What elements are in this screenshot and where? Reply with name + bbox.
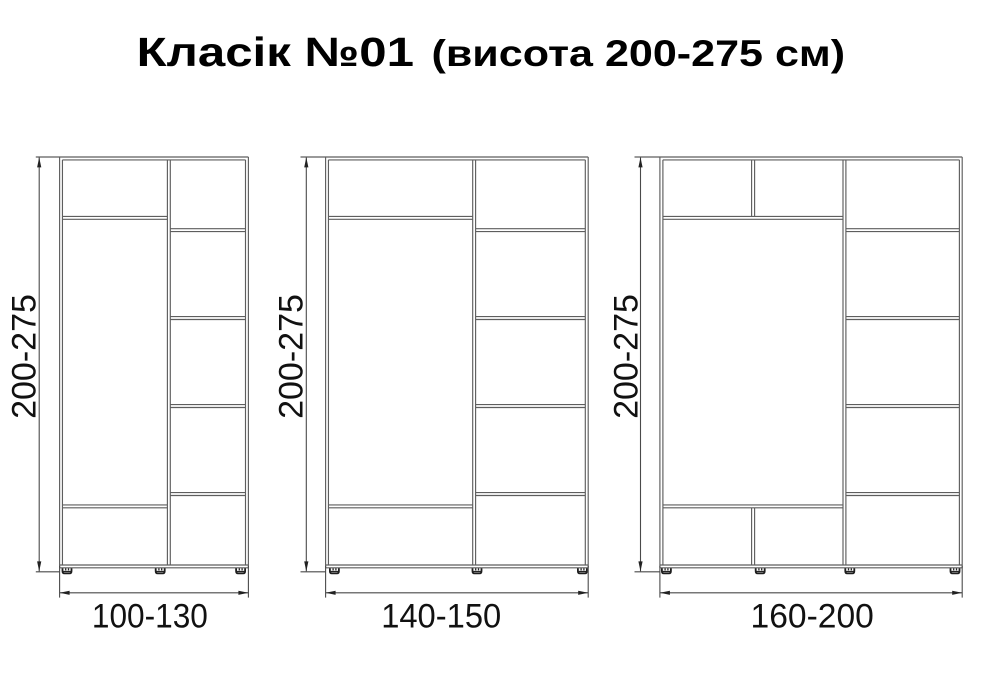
svg-text:200-275: 200-275 xyxy=(273,294,311,419)
svg-text:200-275: 200-275 xyxy=(5,294,43,419)
svg-text:(висота 200-275 см): (висота 200-275 см) xyxy=(432,32,846,74)
svg-text:100-130: 100-130 xyxy=(92,597,208,635)
svg-text:200-275: 200-275 xyxy=(607,294,645,419)
svg-text:Класік №01: Класік №01 xyxy=(137,29,414,75)
svg-text:140-150: 140-150 xyxy=(381,597,501,635)
svg-text:160-200: 160-200 xyxy=(751,597,874,635)
